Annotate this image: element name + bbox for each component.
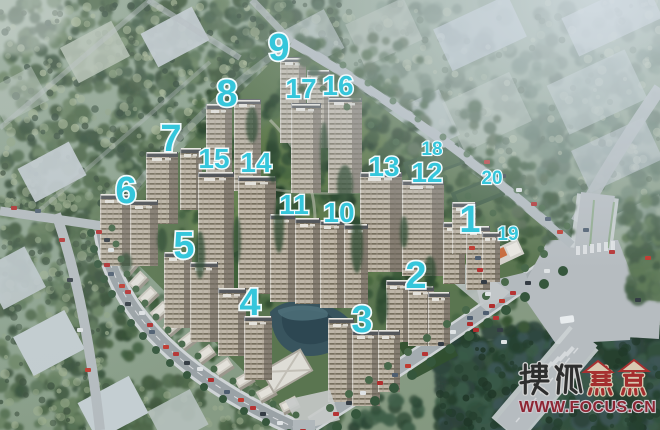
- svg-text:1: 1: [459, 199, 480, 241]
- svg-text:20: 20: [481, 168, 502, 189]
- svg-text:9: 9: [268, 27, 289, 69]
- svg-text:13: 13: [368, 151, 399, 182]
- svg-text:17: 17: [285, 73, 316, 104]
- svg-text:19: 19: [497, 224, 518, 245]
- svg-text:12: 12: [411, 157, 442, 188]
- svg-text:7: 7: [160, 118, 181, 160]
- svg-text:5: 5: [173, 225, 194, 267]
- svg-text:2: 2: [405, 255, 426, 297]
- svg-text:15: 15: [198, 143, 229, 174]
- svg-text:11: 11: [279, 189, 309, 220]
- svg-text:WWW.FOCUS.CN: WWW.FOCUS.CN: [519, 399, 656, 416]
- svg-text:6: 6: [115, 170, 136, 212]
- svg-text:18: 18: [421, 139, 442, 160]
- svg-text:10: 10: [323, 197, 354, 228]
- svg-text:16: 16: [322, 70, 353, 101]
- svg-text:3: 3: [351, 299, 372, 341]
- svg-text:8: 8: [216, 73, 237, 115]
- svg-text:4: 4: [239, 282, 260, 324]
- svg-text:14: 14: [240, 147, 272, 178]
